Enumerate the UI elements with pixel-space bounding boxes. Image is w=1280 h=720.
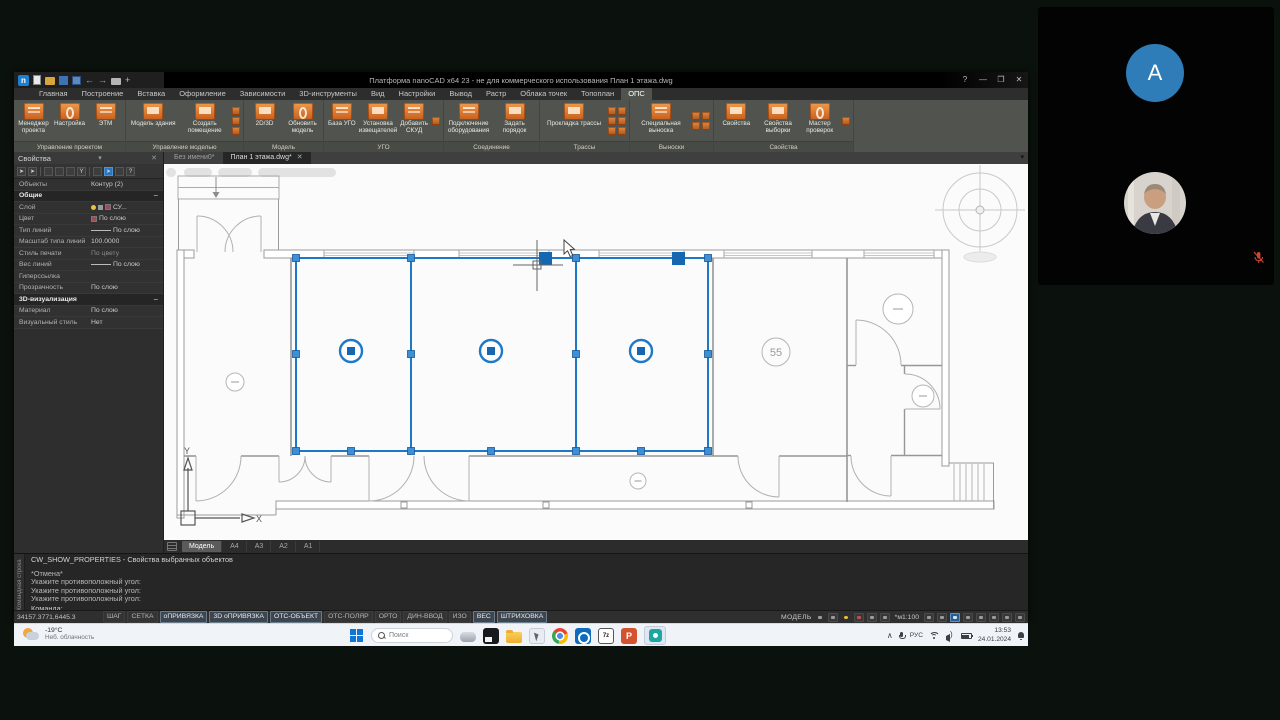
update-model-icon — [293, 103, 313, 120]
toggle-dyninput[interactable]: ДИН-ВВОД — [403, 611, 446, 623]
weather-temperature: -19°C — [45, 627, 94, 634]
properties-button[interactable]: Свойства — [716, 101, 757, 141]
move-icon[interactable] — [66, 167, 75, 176]
command-line-entry: Укажите противоположный угол: — [31, 578, 1022, 587]
prop-section-3d[interactable]: 3D-визуализация − — [14, 294, 163, 306]
windows-taskbar: -19°C Неб. облачность Поиск 7z P ∧ РУС — [14, 623, 1028, 646]
prop-row-transparency[interactable]: Прозрачность По слою — [14, 283, 163, 295]
open-file-icon[interactable] — [45, 77, 55, 85]
doc-tab-plan[interactable]: План 1 этажа.dwg*✕ — [223, 152, 311, 164]
title-bar[interactable]: n ← → + Платформа nanoCAD x64 23 - не дл… — [14, 72, 1028, 88]
ribbon-group-properties: Свойства Свойства выборки Мастер проверо… — [714, 100, 854, 152]
update-model-button[interactable]: Обновить модель — [284, 101, 321, 141]
ribbon-tab-oblaka[interactable]: Облака точек — [513, 88, 574, 100]
leaders-mini-buttons — [691, 101, 711, 141]
mini-icon[interactable] — [702, 112, 710, 120]
command-line-entry: *Отмена* — [31, 570, 1022, 579]
command-panel-tab[interactable]: Командная строка — [14, 554, 25, 610]
ribbon-group-model-mgmt: Модель здания Создать помещение Управлен… — [126, 100, 244, 152]
collapse-icon[interactable]: − — [153, 191, 158, 200]
ribbon-tab-postroenie[interactable]: Построение — [75, 88, 131, 100]
volume-icon[interactable] — [946, 632, 955, 640]
route-laying-icon — [564, 103, 584, 120]
mic-muted-icon[interactable] — [1251, 250, 1266, 265]
taskbar-search[interactable]: Поиск — [371, 628, 453, 643]
add-skud-icon — [404, 103, 424, 120]
weather-widget[interactable]: -19°C Неб. облачность — [22, 626, 94, 642]
ribbon-tab-ops[interactable]: ОПС — [621, 88, 652, 100]
bulb-icon[interactable] — [841, 613, 851, 622]
cursor-mode-icon[interactable] — [854, 613, 864, 622]
create-room-icon — [195, 103, 215, 120]
ribbon-tab-topoplan[interactable]: Топоплан — [574, 88, 621, 100]
ribbon-tab-rastr[interactable]: Растр — [479, 88, 513, 100]
mini-icon[interactable] — [608, 127, 616, 135]
layout-tab-model[interactable]: Модель — [182, 541, 222, 552]
properties-toolbar: ➤ ➤ Y ➤ ? — [14, 164, 163, 179]
prop-section-general[interactable]: Общие − — [14, 191, 163, 203]
battery-icon[interactable] — [961, 633, 972, 639]
window-title: Платформа nanoCAD x64 23 - не для коммер… — [14, 76, 1028, 85]
calc-icon[interactable] — [115, 167, 124, 176]
command-line-entry: Укажите противоположный угол: — [31, 587, 1022, 596]
meeting-app-icon — [649, 629, 662, 642]
mini-icon[interactable] — [842, 117, 850, 125]
special-leader-button[interactable]: Специальная выноска — [632, 101, 690, 141]
ugo-base-icon — [332, 103, 352, 120]
toggle-polar[interactable]: ОТС-ПОЛЯР — [324, 611, 373, 623]
box-select-icon[interactable] — [44, 167, 53, 176]
mini-icon[interactable] — [702, 122, 710, 130]
viewport-icon[interactable] — [1002, 613, 1012, 622]
toggle-step[interactable]: ШАГ — [103, 611, 125, 623]
quick-access-toolbar: n ← → + — [14, 75, 130, 86]
search-placeholder: Поиск — [389, 632, 408, 639]
layer-on-icon[interactable] — [91, 205, 96, 210]
pin-icon[interactable]: ▾ — [96, 154, 104, 162]
toggle-otrack[interactable]: ОТС-ОБЪЕКТ — [270, 611, 322, 623]
floor-plan[interactable]: 55 — [164, 164, 1028, 540]
detectors-install-icon — [368, 103, 388, 120]
linetype-sample — [91, 230, 111, 231]
toggle-ortho[interactable]: ОРТО — [375, 611, 402, 623]
taskbar-app-remote[interactable] — [529, 628, 545, 644]
command-line-entry: Укажите противоположный угол: — [31, 595, 1022, 604]
nanocad-logo-icon: n — [18, 75, 29, 86]
taskbar-app-dark[interactable] — [483, 628, 499, 644]
command-line-entry: CW_SHOW_PROPERTIES - Свойства выбранных … — [31, 556, 1022, 565]
project-manager-button[interactable]: Менеджер проекта — [16, 101, 51, 141]
route-laying-button[interactable]: Прокладка трассы — [542, 101, 606, 141]
2d3d-icon — [255, 103, 275, 120]
print-icon[interactable] — [111, 78, 121, 85]
fullscreen-icon[interactable] — [1015, 613, 1025, 622]
building-model-icon — [143, 103, 163, 120]
mini-icon[interactable] — [232, 127, 240, 135]
ribbon: Менеджер проекта Настройка ЭТМ Управлени… — [14, 100, 1028, 152]
save-icon[interactable] — [59, 76, 68, 85]
clock[interactable]: 13:53 24.01.2024 — [978, 627, 1011, 643]
mini-icon[interactable] — [232, 107, 240, 115]
tray-date: 24.01.2024 — [978, 636, 1011, 644]
zoom-window-icon[interactable] — [950, 613, 960, 622]
ucs-icon: Y X — [181, 446, 262, 525]
ribbon-tab-vyvod[interactable]: Вывод — [442, 88, 479, 100]
properties-panel-title: Свойства — [18, 154, 51, 163]
pick-icon[interactable] — [93, 167, 102, 176]
building-model-button[interactable]: Модель здания — [128, 101, 179, 141]
check-master-button[interactable]: Мастер проверок — [799, 101, 840, 141]
properties-icon — [726, 103, 746, 120]
ribbon-group-ugo: База УГО Установка извещателей Добавить … — [324, 100, 444, 152]
annotation-scale[interactable]: *м1:100 — [893, 614, 921, 621]
prop-row-layer[interactable]: Слой СУ... — [14, 202, 163, 214]
command-line-panel: Командная строка CW_SHOW_PROPERTIES - Св… — [14, 553, 1028, 610]
nanocad-window: n ← → + Платформа nanoCAD x64 23 - не дл… — [14, 72, 1028, 623]
ribbon-group-connection: Подключение оборудования Задать порядок … — [444, 100, 540, 152]
prop-row-ltscale[interactable]: Масштаб типа линий 100.0000 — [14, 237, 163, 249]
toggle-lineweight[interactable]: ВЕС — [473, 611, 495, 623]
ribbon-tab-vstavka[interactable]: Вставка — [130, 88, 172, 100]
etm-icon — [96, 103, 116, 120]
ribbon-tab-glavnaya[interactable]: Главная — [32, 88, 75, 100]
maximize-button[interactable]: ❐ — [992, 73, 1010, 87]
redo-icon[interactable]: → — [98, 75, 107, 85]
mini-icon[interactable] — [618, 107, 626, 115]
set-order-button[interactable]: Задать порядок — [492, 101, 537, 141]
prop-row-plotstyle[interactable]: Стиль печати По цвету — [14, 248, 163, 260]
close-panel-icon[interactable]: ✕ — [149, 154, 159, 162]
room-number-bubble[interactable]: 55 — [762, 338, 790, 366]
screen: n ← → + Платформа nanoCAD x64 23 - не дл… — [0, 0, 1280, 720]
mini-icon[interactable] — [432, 117, 440, 125]
space-indicator[interactable]: МОДЕЛЬ — [781, 614, 812, 621]
participant-portrait — [1124, 172, 1186, 234]
participant-avatar[interactable]: A — [1126, 44, 1184, 102]
prop-row-color[interactable]: Цвет По слою — [14, 214, 163, 226]
weather-condition: Неб. облачность — [45, 634, 94, 641]
close-tab-icon[interactable]: ✕ — [297, 154, 303, 161]
marker-circles[interactable] — [226, 294, 934, 489]
ugo-mini-buttons — [431, 101, 441, 141]
toggle-3dosnap[interactable]: 3D оПРИВЯЗКА — [209, 611, 267, 623]
taskbar-app-outlook[interactable] — [575, 628, 591, 644]
taskbar-app-powerpoint[interactable]: P — [621, 628, 637, 644]
close-button[interactable]: ✕ — [1010, 73, 1028, 87]
locate-icon[interactable] — [989, 613, 999, 622]
zoom-icon[interactable] — [937, 613, 947, 622]
drawing-canvas[interactable]: 55 — [164, 164, 1028, 540]
room-number-label: 55 — [770, 347, 782, 359]
properties-panel: Свойства ▾ ✕ ➤ ➤ Y ➤ ? — [14, 152, 164, 553]
connect-equipment-icon — [459, 103, 479, 120]
ugo-base-button[interactable]: База УГО — [326, 101, 358, 141]
layout-tab-a2[interactable]: А2 — [272, 541, 296, 552]
ribbon-group-project: Менеджер проекта Настройка ЭТМ Управлени… — [14, 100, 126, 152]
undo-icon[interactable]: ← — [85, 75, 94, 85]
2d3d-button[interactable]: 2D/3D — [246, 101, 283, 141]
settings-icon — [60, 103, 80, 120]
participant-video-thumbnail[interactable] — [1124, 172, 1186, 234]
connect-equipment-button[interactable]: Подключение оборудования — [446, 101, 491, 141]
project-manager-icon — [24, 103, 44, 120]
layer-freeze-icon[interactable] — [98, 205, 103, 210]
create-room-button[interactable]: Создать помещение — [180, 101, 231, 141]
toggle-hatch[interactable]: ШТРИХОВКА — [497, 611, 547, 623]
workspace-icon[interactable] — [815, 613, 825, 622]
prop-row-hyperlink[interactable]: Гиперссылка — [14, 271, 163, 283]
taskbar-app-widgets[interactable] — [460, 632, 476, 642]
doc-tab-untitled[interactable]: Без имени0* — [166, 152, 223, 164]
etm-button[interactable]: ЭТМ — [88, 101, 123, 141]
cursor-coordinates: 34157.3771,6445.3 — [17, 614, 101, 621]
ribbon-group-routes: Прокладка трассы Трассы — [540, 100, 630, 152]
ucs-y-label: Y — [184, 446, 190, 456]
mini-icon[interactable] — [692, 112, 700, 120]
save-all-icon[interactable] — [72, 76, 81, 85]
settings-button[interactable]: Настройка — [52, 101, 87, 141]
ribbon-tab-bar: Главная Построение Вставка Оформление За… — [14, 88, 1028, 100]
layout-tab-a1[interactable]: А1 — [297, 541, 321, 552]
tray-time: 13:53 — [978, 627, 1011, 635]
set-order-icon — [505, 103, 525, 120]
status-bar: 34157.3771,6445.3 ШАГ СЕТКА оПРИВЯЗКА 3D… — [14, 610, 1028, 623]
taskbar-app-meeting-active[interactable] — [644, 626, 666, 645]
ribbon-tab-oformlenie[interactable]: Оформление — [172, 88, 233, 100]
new-file-icon[interactable] — [33, 75, 41, 85]
ribbon-tab-3d[interactable]: 3D-инструменты — [292, 88, 364, 100]
toggle-iso[interactable]: ИЗО — [449, 611, 471, 623]
ucs-toggle-icon[interactable] — [880, 613, 890, 622]
prop-row-lineweight[interactable]: Вес линий По слою — [14, 260, 163, 272]
wifi-icon[interactable] — [929, 632, 940, 640]
layout-tab-a3[interactable]: А3 — [248, 541, 272, 552]
smoke-detector-symbols[interactable] — [340, 340, 652, 362]
selection-properties-button[interactable]: Свойства выборки — [758, 101, 799, 141]
video-call-panel: A — [1038, 7, 1274, 285]
window-controls: ? — ❐ ✕ — [956, 73, 1028, 87]
mini-icon[interactable] — [618, 127, 626, 135]
crosshair-cursor — [513, 240, 563, 291]
language-indicator[interactable]: РУС — [910, 632, 923, 639]
taskbar-app-explorer[interactable] — [506, 632, 522, 643]
add-skud-button[interactable]: Добавить СКУД — [398, 101, 430, 141]
help-circle-icon[interactable]: ? — [126, 167, 135, 176]
mini-icon[interactable] — [692, 122, 700, 130]
prop-row-material[interactable]: Материал По слою — [14, 306, 163, 318]
special-leader-icon — [651, 103, 671, 120]
document-tab-bar: Без имени0* План 1 этажа.dwg*✕ ▾ — [164, 152, 1028, 164]
help-button[interactable]: ? — [956, 73, 974, 87]
toggle-grid[interactable]: СЕТКА — [127, 611, 157, 623]
collapse-icon[interactable]: − — [153, 295, 158, 304]
tray-chevron-icon[interactable]: ∧ — [887, 631, 893, 640]
notifications-bell-icon[interactable] — [1017, 632, 1025, 640]
start-button[interactable] — [350, 629, 364, 643]
layout-tab-a4[interactable]: А4 — [223, 541, 247, 552]
mini-icon[interactable] — [608, 107, 616, 115]
prop-row-linetype[interactable]: Тип линий По слою — [14, 225, 163, 237]
tray-mic-icon[interactable] — [899, 632, 904, 640]
ribbon-tab-nastroiki[interactable]: Настройки — [392, 88, 443, 100]
ucs-x-label: X — [256, 514, 262, 524]
layer-color-chip — [105, 204, 111, 210]
ribbon-group-model: 2D/3D Обновить модель Модель — [244, 100, 324, 152]
show-preview-icon[interactable] — [963, 613, 973, 622]
box-select2-icon[interactable] — [55, 167, 64, 176]
orbit-icon[interactable] — [976, 613, 986, 622]
command-history[interactable]: CW_SHOW_PROPERTIES - Свойства выбранных … — [25, 554, 1028, 610]
filter-icon[interactable]: Y — [77, 167, 86, 176]
ribbon-tab-zavisimosti[interactable]: Зависимости — [233, 88, 293, 100]
layout-tab-bar: Модель А4 А3 А2 А1 — [164, 540, 1028, 553]
weather-icon — [22, 626, 40, 642]
mini-icon[interactable] — [232, 117, 240, 125]
monitor-icon[interactable] — [828, 613, 838, 622]
taskbar-app-7zip[interactable]: 7z — [598, 628, 614, 644]
mini-icon[interactable] — [618, 117, 626, 125]
prop-row-objects[interactable]: Объекты Контур (2) — [14, 179, 163, 191]
select-arrow-icon[interactable]: ➤ — [17, 167, 26, 176]
quick-select-icon[interactable]: ➤ — [104, 167, 113, 176]
tab-overflow-icon[interactable]: ▾ — [1020, 152, 1024, 164]
ribbon-group-leaders: Специальная выноска Выноски — [630, 100, 714, 152]
taskbar-app-chrome[interactable] — [552, 628, 568, 644]
lineweight-sample — [91, 264, 111, 265]
ribbon-tab-vid[interactable]: Вид — [364, 88, 392, 100]
prop-row-visualstyle[interactable]: Визуальный стиль Нет — [14, 317, 163, 329]
layout-menu-icon[interactable] — [167, 542, 177, 551]
toggle-osnap[interactable]: оПРИВЯЗКА — [160, 611, 208, 623]
mini-icon[interactable] — [608, 117, 616, 125]
check-master-icon — [810, 103, 830, 120]
walls[interactable] — [177, 176, 994, 518]
selection-properties-icon — [768, 103, 788, 120]
routes-mini-buttons — [607, 101, 627, 141]
color-chip — [91, 216, 97, 222]
select-arrow2-icon[interactable]: ➤ — [28, 167, 37, 176]
props-mini-buttons — [841, 101, 851, 141]
ribbon-group-label: Управление проектом — [14, 141, 125, 152]
minimize-button[interactable]: — — [974, 73, 992, 87]
target-symbol[interactable] — [935, 165, 1025, 262]
add-toolbar-icon[interactable]: + — [125, 75, 130, 85]
system-tray: ∧ РУС 13:53 24.01.2024 — [887, 625, 1025, 646]
pan-icon[interactable] — [924, 613, 934, 622]
search-icon — [378, 632, 385, 639]
detectors-install-button[interactable]: Установка извещателей — [359, 101, 398, 141]
model-mini-buttons — [231, 101, 241, 141]
select-mode-icon[interactable] — [867, 613, 877, 622]
